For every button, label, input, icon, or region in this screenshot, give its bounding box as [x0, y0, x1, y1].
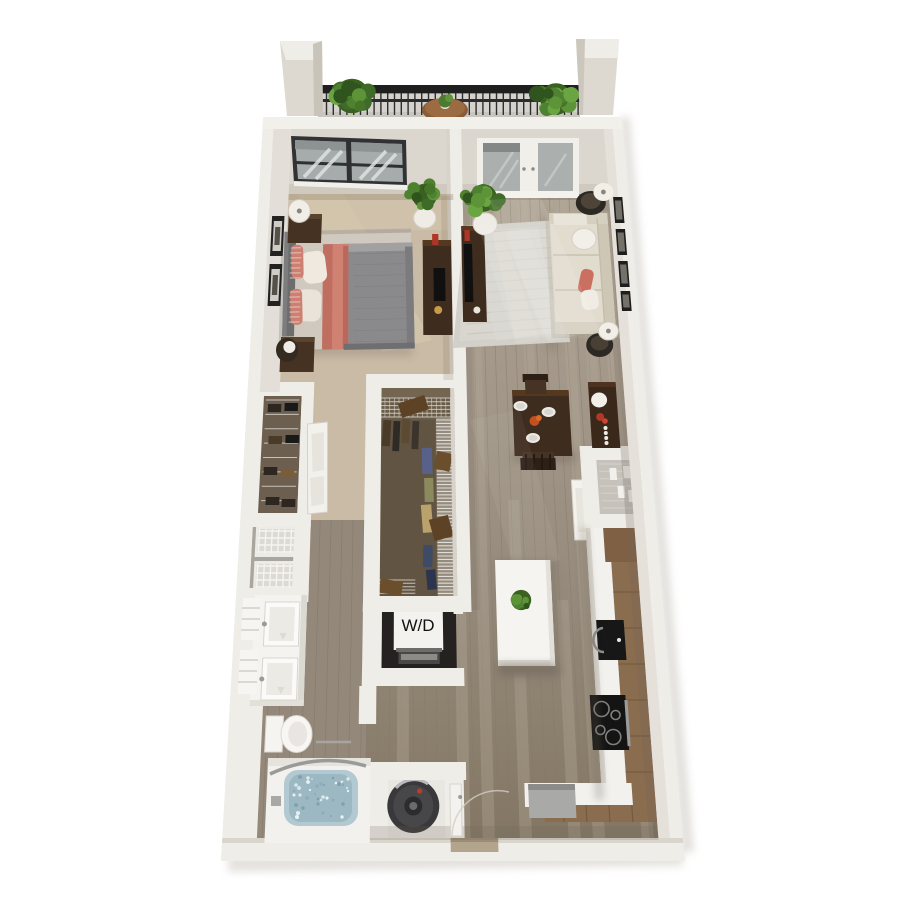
svg-text:W/D: W/D	[401, 616, 434, 635]
